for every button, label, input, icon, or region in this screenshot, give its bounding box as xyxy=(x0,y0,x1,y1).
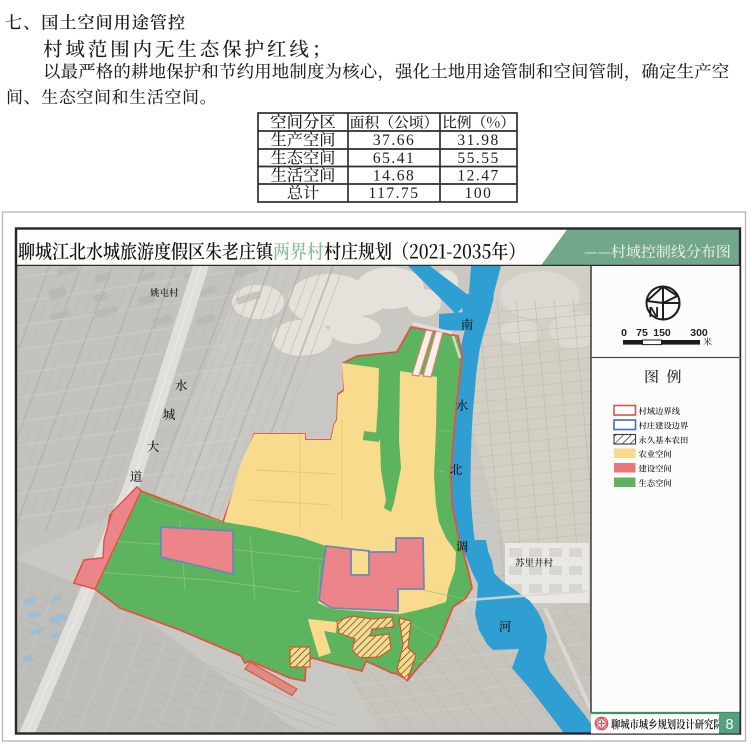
svg-text:N: N xyxy=(649,305,659,321)
svg-text:75: 75 xyxy=(636,327,648,339)
svg-text:117.75: 117.75 xyxy=(368,185,419,202)
svg-text:300: 300 xyxy=(690,327,708,339)
svg-text:0: 0 xyxy=(621,327,627,339)
svg-text:14.68: 14.68 xyxy=(373,167,415,184)
svg-text:31.98: 31.98 xyxy=(457,132,499,149)
svg-text:100: 100 xyxy=(465,185,493,202)
svg-text:65.41: 65.41 xyxy=(373,150,415,167)
svg-text:150: 150 xyxy=(653,327,671,339)
svg-text:55.55: 55.55 xyxy=(457,150,499,167)
svg-text:12.47: 12.47 xyxy=(457,167,499,184)
svg-text:8: 8 xyxy=(725,717,733,733)
svg-text:37.66: 37.66 xyxy=(373,132,415,149)
